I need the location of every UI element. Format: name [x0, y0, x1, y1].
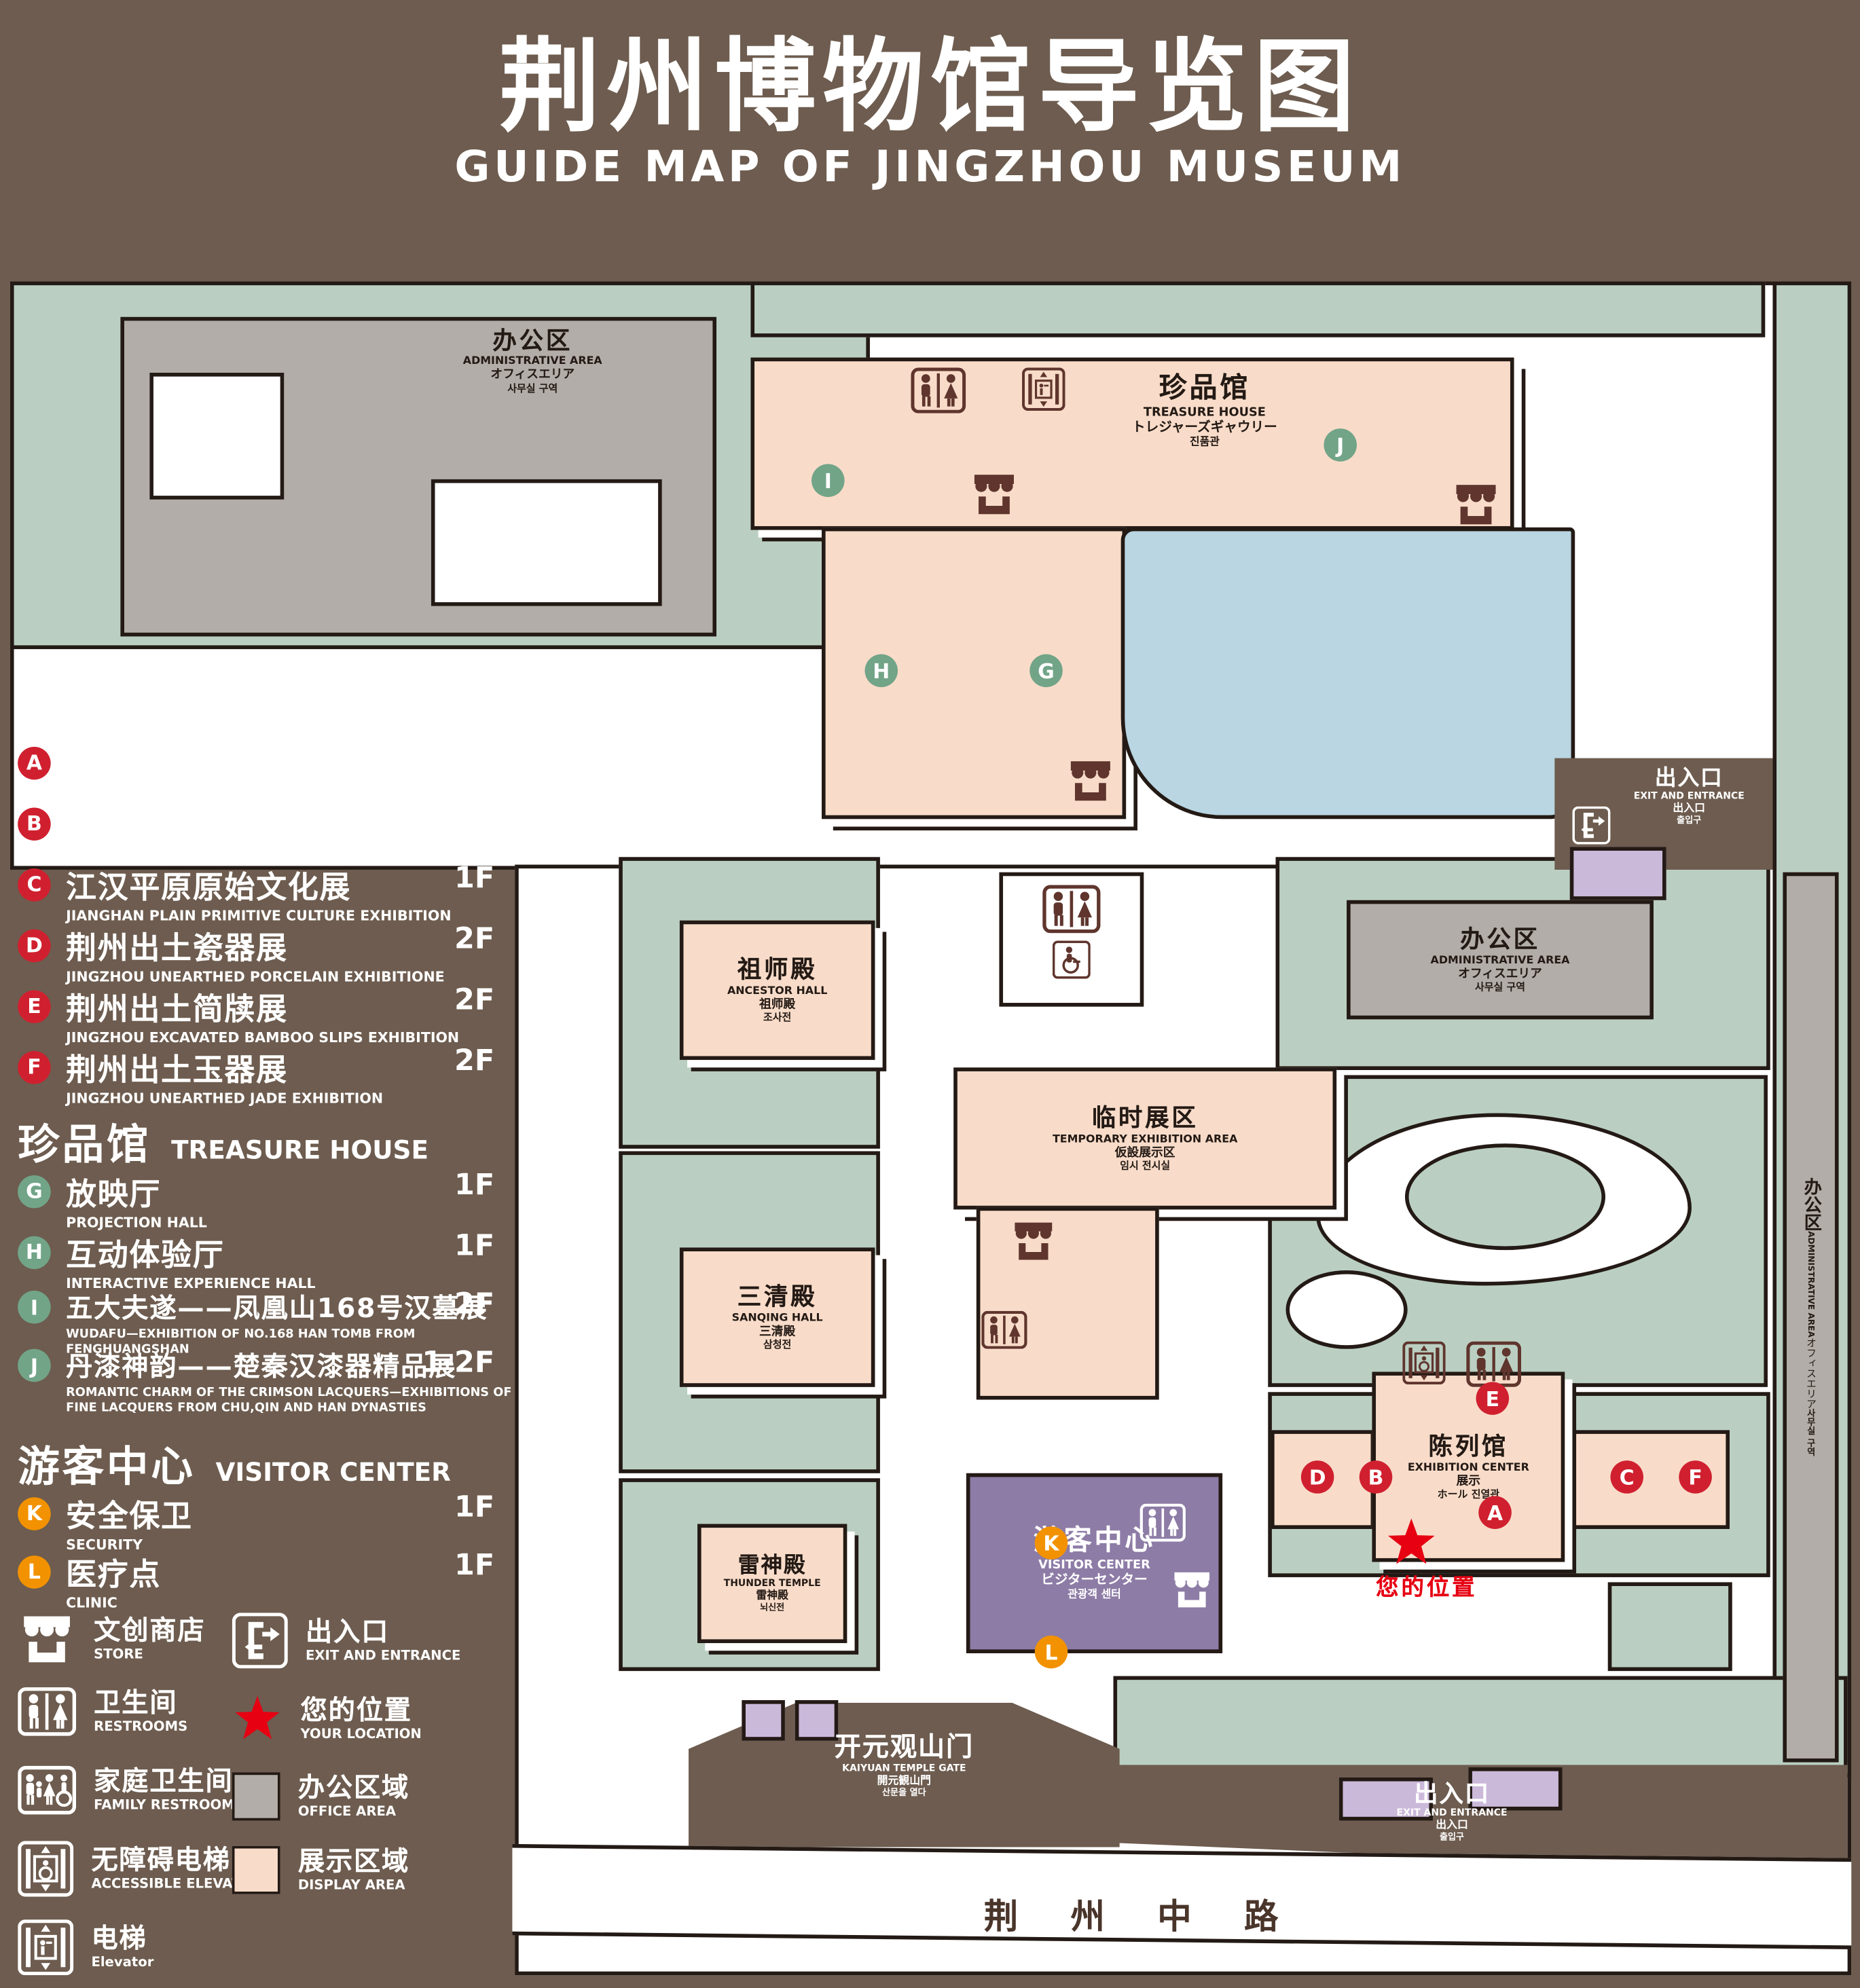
accessible-restroom-icon	[1053, 941, 1091, 979]
exit-icon	[1572, 807, 1610, 845]
accessible-elevator-icon	[1402, 1342, 1445, 1384]
marker-D: D	[1301, 1460, 1334, 1494]
legend-symbol-restrooms: 卫生间RESTROOMS	[18, 1687, 187, 1737]
legend-item-J: J丹漆神韵——楚秦汉漆器精品展1-2F ROMANTIC CHARM OF TH…	[18, 1346, 515, 1416]
thunder-temple-building: 雷神殿 THUNDER TEMPLE 雷神殿 뇌신전	[697, 1524, 847, 1643]
display-area-swatch	[232, 1846, 280, 1894]
legend-marker-J: J	[18, 1349, 51, 1382]
legend-item-E: E荆州出土简牍展2F JINGZHOU EXCAVATED BAMBOO SLI…	[18, 984, 515, 1047]
ancestor-hall-building: 祖师殿 ANCESTOR HALL 祖师殿 조사전	[680, 921, 875, 1060]
legend-marker-B: B	[18, 807, 51, 841]
administrative-building-east: 办公区 ADMINISTRATIVE AREA オフィスエリア 사무실 구역	[1783, 872, 1838, 1763]
courtyard	[149, 373, 284, 500]
legend-marker-E: E	[18, 989, 51, 1023]
marker-L: L	[1035, 1636, 1068, 1669]
legend-section-visitor-center: 游客中心 VISITOR CENTER	[18, 1433, 451, 1494]
administrative-area-nw-label: 办公区 ADMINISTRATIVE AREA オフィスエリア 사무실 구역	[380, 327, 685, 394]
restrooms-icon	[18, 1687, 76, 1737]
road-label: 荆 州 中 路	[786, 1889, 1497, 1938]
legend-marker-A: A	[18, 746, 51, 779]
page-subtitle: GUIDE MAP OF JINGZHOU MUSEUM	[0, 142, 1860, 193]
legend-marker-C: C	[18, 868, 51, 901]
legend-section-treasure-house: 珍品馆 TREASURE HOUSE	[18, 1111, 428, 1172]
south-exit-label: 出入口 EXIT AND ENTRANCE 出入口 출입구	[1370, 1780, 1535, 1843]
family-restrooms-icon	[18, 1765, 76, 1816]
legend-symbol-display-area: 展示区域DISPLAY AREA	[232, 1846, 409, 1894]
restrooms-icon	[981, 1311, 1027, 1349]
restrooms-icon	[1466, 1342, 1522, 1387]
marker-I: I	[812, 464, 845, 497]
guide-map-poster: 荆州博物馆导览图 GUIDE MAP OF JINGZHOU MUSEUM 办公…	[0, 0, 1860, 1988]
legend-symbol-accessible-elevator: 无障碍电梯ACCESSIBLE ELEVATOR	[18, 1841, 262, 1896]
restrooms-icon	[1042, 885, 1101, 933]
legend-item-L: L医疗点1F CLINIC	[18, 1549, 515, 1613]
store-icon	[1169, 1570, 1215, 1610]
legend-marker-K: K	[18, 1496, 51, 1530]
store-icon	[18, 1613, 76, 1665]
marker-G: G	[1029, 655, 1063, 688]
elevator-icon	[1022, 368, 1065, 411]
legend-item-A: A《火中的凤凰》壁画1F THE PHOENIX IN FIRE "MURAL …	[18, 741, 515, 804]
store-icon	[1451, 482, 1501, 528]
visitor-center-building: 游客中心 VISITOR CENTER ビジターセンター 관광객 센터	[966, 1473, 1222, 1653]
legend-marker-D: D	[18, 929, 51, 962]
garden-island	[1405, 1143, 1605, 1250]
sanqing-hall-building: 三清殿 SANQING HALL 三清殿 삼청전	[680, 1247, 875, 1386]
legend-symbol-your-location: 您的位置YOUR LOCATION	[232, 1694, 422, 1745]
garden-path	[1285, 1270, 1407, 1349]
legend-item-B: B荆州出土铜器展1F JINGZHOU UNEARTHED BRONZE WAR…	[18, 801, 515, 864]
administrative-building-mid: 办公区 ADMINISTRATIVE AREA オフィスエリア 사무실 구역	[1347, 900, 1654, 1020]
lawn	[750, 282, 1765, 337]
page-title: 荆州博物馆导览图	[0, 5, 1860, 152]
marker-A: A	[1478, 1496, 1512, 1529]
legend-item-K: K安全保卫1F SECURITY	[18, 1491, 515, 1554]
marker-B: B	[1360, 1460, 1393, 1494]
temporary-exhibition-wing	[977, 1207, 1159, 1400]
elevator-icon	[18, 1919, 73, 1975]
store-icon	[1009, 1219, 1057, 1262]
marker-H: H	[864, 655, 898, 688]
east-exit-label: 出入口 EXIT AND ENTRANCE 出入口 출입구	[1605, 766, 1772, 826]
your-location-star	[1385, 1516, 1438, 1569]
gate-structure	[1570, 847, 1666, 900]
pond	[1121, 528, 1575, 819]
legend-section-exhibition-center: 陈列馆 EXHIBITION CENTER	[18, 682, 457, 743]
restrooms-icon	[911, 368, 966, 413]
lawn	[1113, 1676, 1847, 1773]
your-location-star	[232, 1694, 283, 1745]
legend-item-F: F荆州出土玉器展2F JINGZHOU UNEARTHED JADE EXHIB…	[18, 1045, 515, 1108]
office-area-swatch	[232, 1772, 280, 1820]
exit-icon	[232, 1613, 288, 1668]
legend-marker-G: G	[18, 1175, 51, 1208]
temporary-exhibition-building: 临时展区 TEMPORARY EXHIBITION AREA 仮設展示区 임시 …	[953, 1067, 1336, 1209]
legend-symbol-exit: 出入口EXIT AND ENTRANCE	[232, 1613, 461, 1668]
lawn	[1608, 1582, 1732, 1671]
legend-symbol-family-restrooms: 家庭卫生间FAMILY RESTROOMS	[18, 1765, 244, 1816]
kaiyuan-gate-label: 开元观山门 KAIYUAN TEMPLE GATE 開元観山門 산문을 열다	[701, 1732, 1108, 1798]
legend-marker-H: H	[18, 1236, 51, 1269]
legend-symbol-store: 文创商店STORE	[18, 1613, 205, 1665]
legend-symbol-elevator: 电梯Elevator	[18, 1919, 153, 1975]
legend-item-C: C江汉平原原始文化展1F JIANGHAN PLAIN PRIMITIVE CU…	[18, 862, 515, 925]
accessible-elevator-icon	[18, 1841, 73, 1896]
legend-item-D: D荆州出土瓷器展2F JINGZHOU UNEARTHED PORCELAIN …	[18, 923, 515, 986]
legend-symbol-office-area: 办公区域OFFICE AREA	[232, 1772, 409, 1820]
marker-F: F	[1679, 1460, 1712, 1494]
store-icon	[969, 472, 1020, 517]
marker-C: C	[1610, 1460, 1643, 1494]
restrooms-icon	[1139, 1504, 1187, 1542]
legend-marker-F: F	[18, 1050, 51, 1084]
courtyard	[431, 479, 662, 606]
marker-J: J	[1324, 428, 1357, 462]
legend-item-G: G放映厅1F PROJECTION HALL	[18, 1169, 515, 1232]
store-icon	[1065, 758, 1116, 804]
legend-item-H: H互动体验厅1F INTERACTIVE EXPERIENCE HALL	[18, 1230, 515, 1293]
marker-E: E	[1476, 1382, 1510, 1415]
marker-K: K	[1035, 1526, 1068, 1560]
your-location-label: 您的位置	[1344, 1570, 1509, 1603]
legend-marker-I: I	[18, 1291, 51, 1324]
legend-marker-L: L	[18, 1555, 51, 1588]
